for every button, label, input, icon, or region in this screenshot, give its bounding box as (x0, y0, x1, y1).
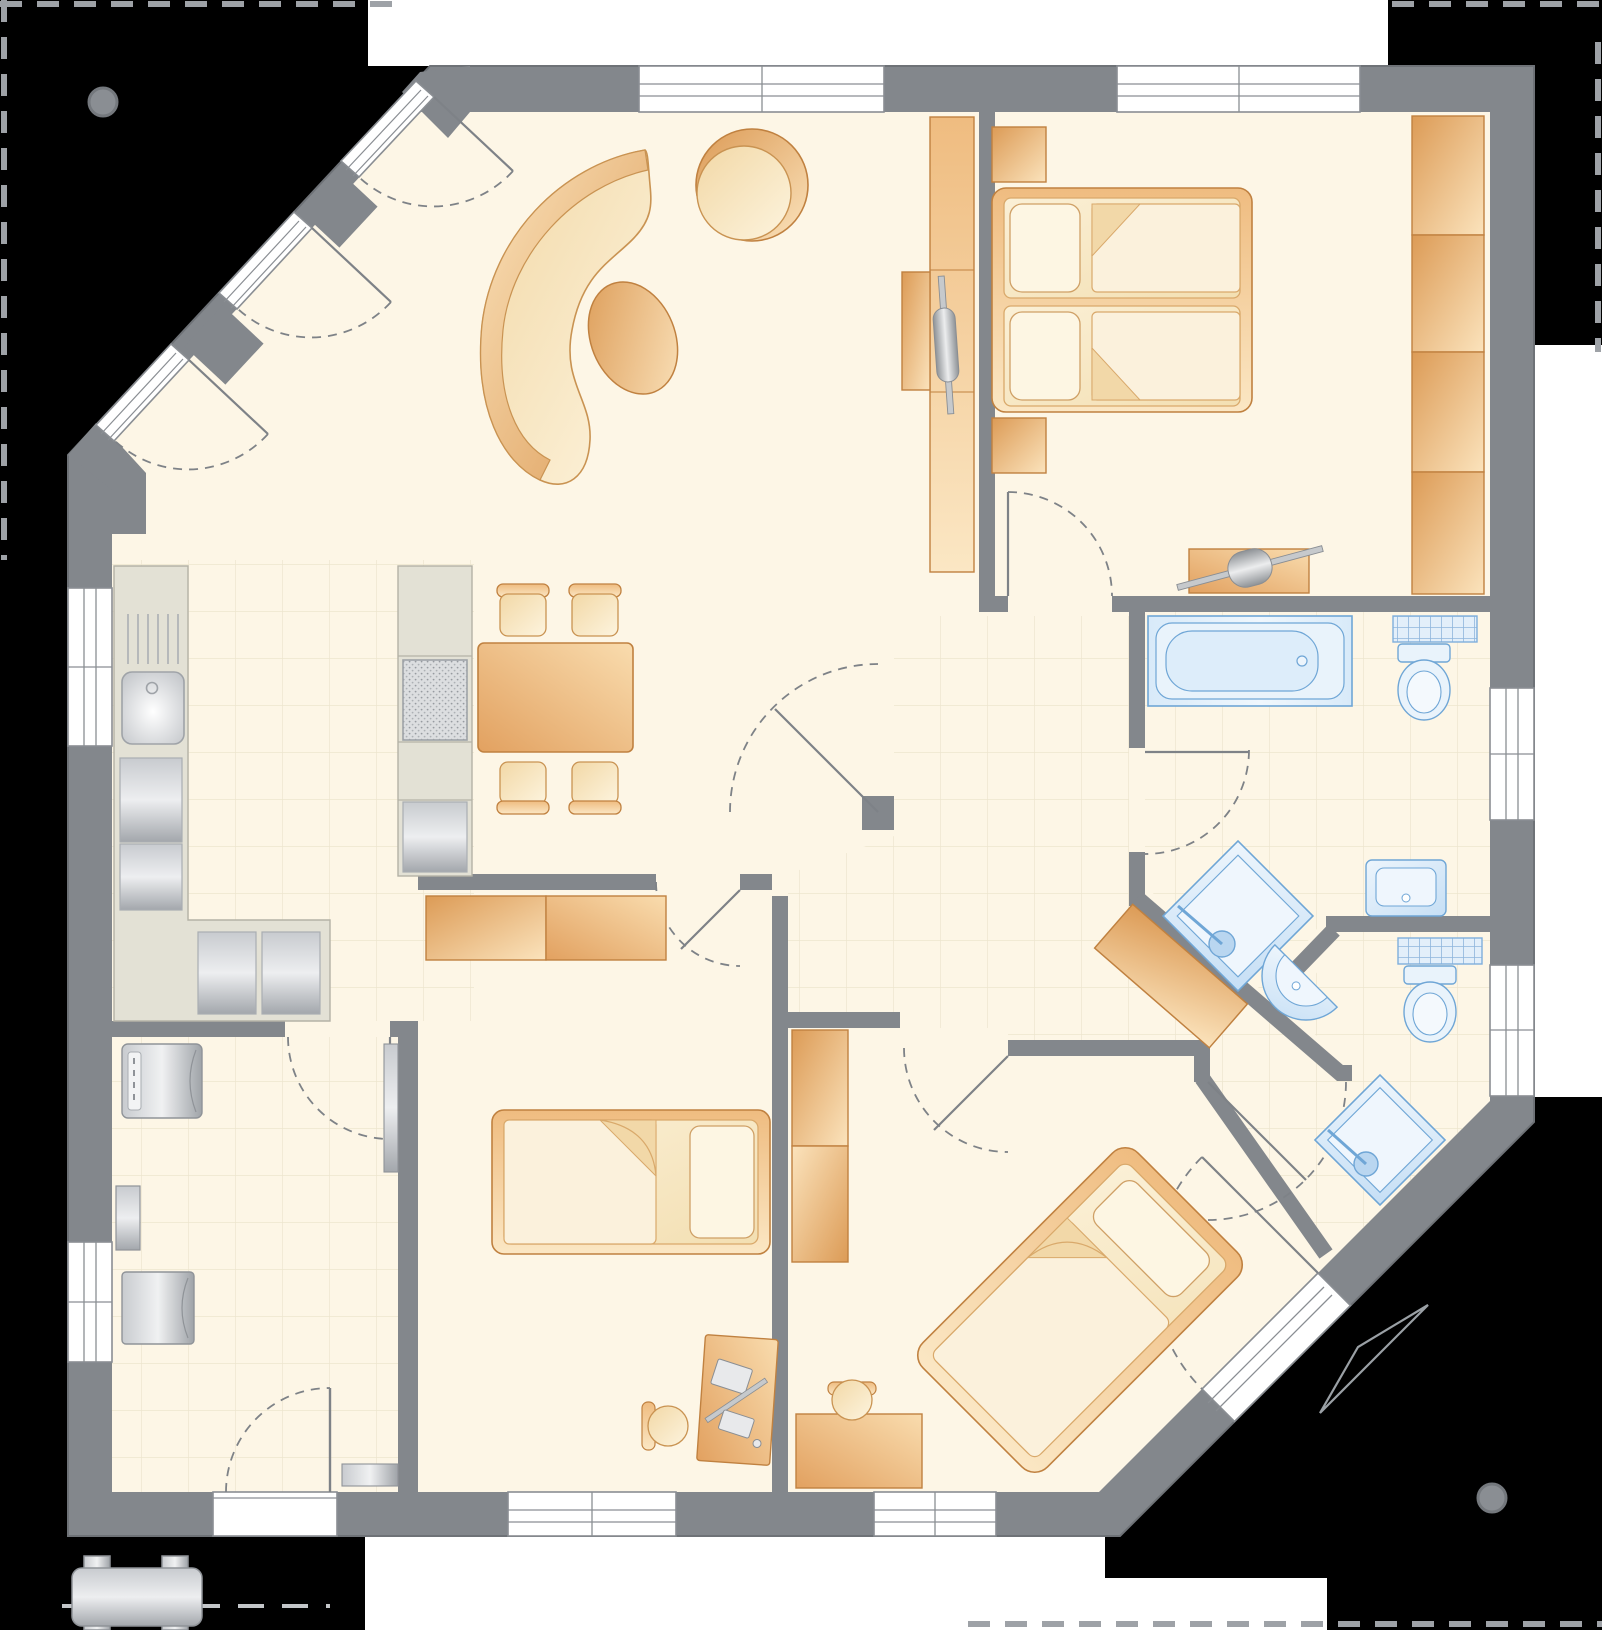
computer-mouse-icon (753, 1439, 762, 1448)
wall-utility-north-a (112, 1021, 285, 1037)
washbasin-drain-icon (1402, 894, 1410, 902)
window-bottom-guest (874, 1492, 996, 1536)
window-right-wc (1490, 965, 1534, 1096)
bathtub-drain-icon (1297, 656, 1307, 666)
built-in-fridge (120, 758, 182, 842)
pillow (1010, 204, 1080, 292)
wall-bath-wc (1326, 916, 1490, 932)
window-top-living (639, 66, 884, 112)
paper-patch-top (368, 0, 1388, 66)
dining-stool (497, 584, 549, 636)
double-bed (992, 188, 1252, 412)
chest-freezer (122, 1272, 194, 1344)
dining-stool (497, 762, 549, 814)
paper-patch-right (1534, 345, 1602, 1097)
corner-appliance-2 (262, 932, 320, 1014)
radiator-vertical (384, 1044, 398, 1172)
toilet (1398, 644, 1450, 720)
window-bottom-child (508, 1492, 676, 1536)
bathtub (1148, 616, 1352, 706)
cooktop (403, 660, 467, 740)
wall-master-south-b (1112, 596, 1490, 612)
sideboard (546, 896, 666, 960)
wall-master-south-a (979, 596, 1008, 612)
window-right-bath (1490, 688, 1534, 820)
dining-stool (569, 762, 621, 814)
nightstand (992, 127, 1046, 182)
wardrobe-section (792, 1030, 848, 1146)
wall-guestroom-north-b (1008, 1040, 1210, 1056)
wall-guestroom-north-a (788, 1012, 900, 1028)
pillow (1010, 312, 1080, 400)
wall-bath-west-a (1129, 612, 1145, 748)
dining-table (478, 643, 633, 752)
window-left-utility (68, 1242, 112, 1362)
survey-marker-dot-topleft (89, 88, 117, 116)
towel-radiator (1393, 616, 1477, 642)
floor-plan-drawing (0, 0, 1602, 1630)
towel-radiator (1398, 938, 1482, 964)
wall-guestroom-north-stub (1194, 1056, 1210, 1082)
water-heater (116, 1186, 140, 1250)
radiator-entrance (342, 1464, 398, 1486)
sideboard (426, 896, 546, 960)
washbasin (1366, 860, 1446, 916)
nightstand (992, 418, 1046, 473)
wall-child-north-b (740, 874, 772, 890)
tall-cabinet-line (398, 566, 472, 876)
floor-plan-stage (0, 0, 1602, 1630)
paper-patch-bottom (365, 1536, 1105, 1630)
paper-patch-bottom-right (1105, 1578, 1327, 1630)
corner-appliance-1 (198, 932, 256, 1014)
wall-utility-child (398, 1021, 418, 1492)
single-bed (492, 1110, 770, 1254)
toilet (1404, 966, 1456, 1042)
washing-machine (122, 1044, 202, 1118)
desk-with-computer (697, 1335, 779, 1466)
desk (796, 1414, 922, 1488)
built-in-appliance (120, 844, 182, 910)
window-top-master (1117, 66, 1360, 112)
survey-marker-dot-bottomright (1478, 1484, 1506, 1512)
wardrobe-four-sections (1412, 116, 1484, 594)
pillow (690, 1126, 754, 1238)
window-left-kitchen (68, 588, 112, 746)
oven (403, 802, 467, 872)
round-armchair-seat (697, 146, 791, 240)
dining-stool (569, 584, 621, 636)
wardrobe-section (792, 1146, 848, 1262)
